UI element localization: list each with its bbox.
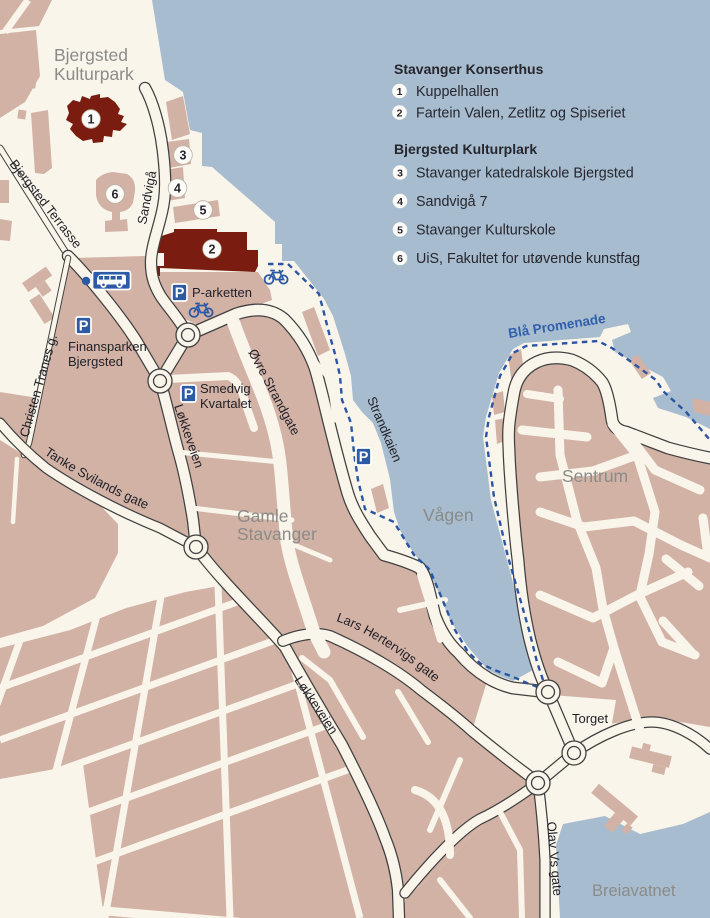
svg-text:2: 2 bbox=[397, 107, 403, 119]
svg-text:Stavanger: Stavanger bbox=[237, 524, 317, 544]
svg-text:2: 2 bbox=[209, 243, 216, 257]
svg-text:Breiavatnet: Breiavatnet bbox=[592, 882, 676, 900]
svg-text:Bjergsted: Bjergsted bbox=[68, 354, 123, 369]
svg-text:6: 6 bbox=[397, 253, 403, 265]
svg-text:4: 4 bbox=[174, 182, 181, 196]
svg-text:Bjergsted: Bjergsted bbox=[54, 45, 128, 65]
svg-text:P-arketten: P-arketten bbox=[192, 285, 252, 300]
svg-text:3: 3 bbox=[397, 167, 403, 179]
svg-text:Torget: Torget bbox=[572, 711, 609, 726]
svg-text:Sentrum: Sentrum bbox=[562, 466, 628, 486]
svg-text:6: 6 bbox=[112, 188, 119, 202]
svg-text:4: 4 bbox=[397, 196, 403, 208]
svg-text:Finansparken: Finansparken bbox=[68, 339, 147, 354]
svg-text:Stavanger Kulturskole: Stavanger Kulturskole bbox=[416, 222, 556, 238]
svg-text:5: 5 bbox=[397, 224, 403, 236]
svg-text:UiS, Fakultet for utøvende kun: UiS, Fakultet for utøvende kunstfag bbox=[416, 251, 640, 267]
svg-text:1: 1 bbox=[88, 113, 95, 127]
svg-text:3: 3 bbox=[180, 149, 187, 163]
svg-text:Vågen: Vågen bbox=[423, 505, 474, 525]
svg-text:Sandvigå 7: Sandvigå 7 bbox=[416, 194, 488, 210]
svg-text:Gamle: Gamle bbox=[237, 506, 289, 526]
svg-text:5: 5 bbox=[200, 204, 207, 218]
svg-text:Kvartalet: Kvartalet bbox=[200, 396, 252, 411]
svg-text:Stavanger Konserthus: Stavanger Konserthus bbox=[394, 61, 544, 77]
svg-text:Fartein Valen, Zetlitz og Spis: Fartein Valen, Zetlitz og Spiseriet bbox=[416, 105, 626, 121]
svg-text:Stavanger katedralskole Bjergs: Stavanger katedralskole Bjergsted bbox=[416, 165, 634, 181]
svg-text:Kuppelhallen: Kuppelhallen bbox=[416, 84, 499, 100]
svg-text:Bjergsted Kulturplark: Bjergsted Kulturplark bbox=[394, 141, 537, 157]
svg-text:1: 1 bbox=[397, 86, 403, 98]
svg-text:Kulturpark: Kulturpark bbox=[54, 64, 134, 84]
svg-text:Smedvig: Smedvig bbox=[200, 381, 251, 396]
